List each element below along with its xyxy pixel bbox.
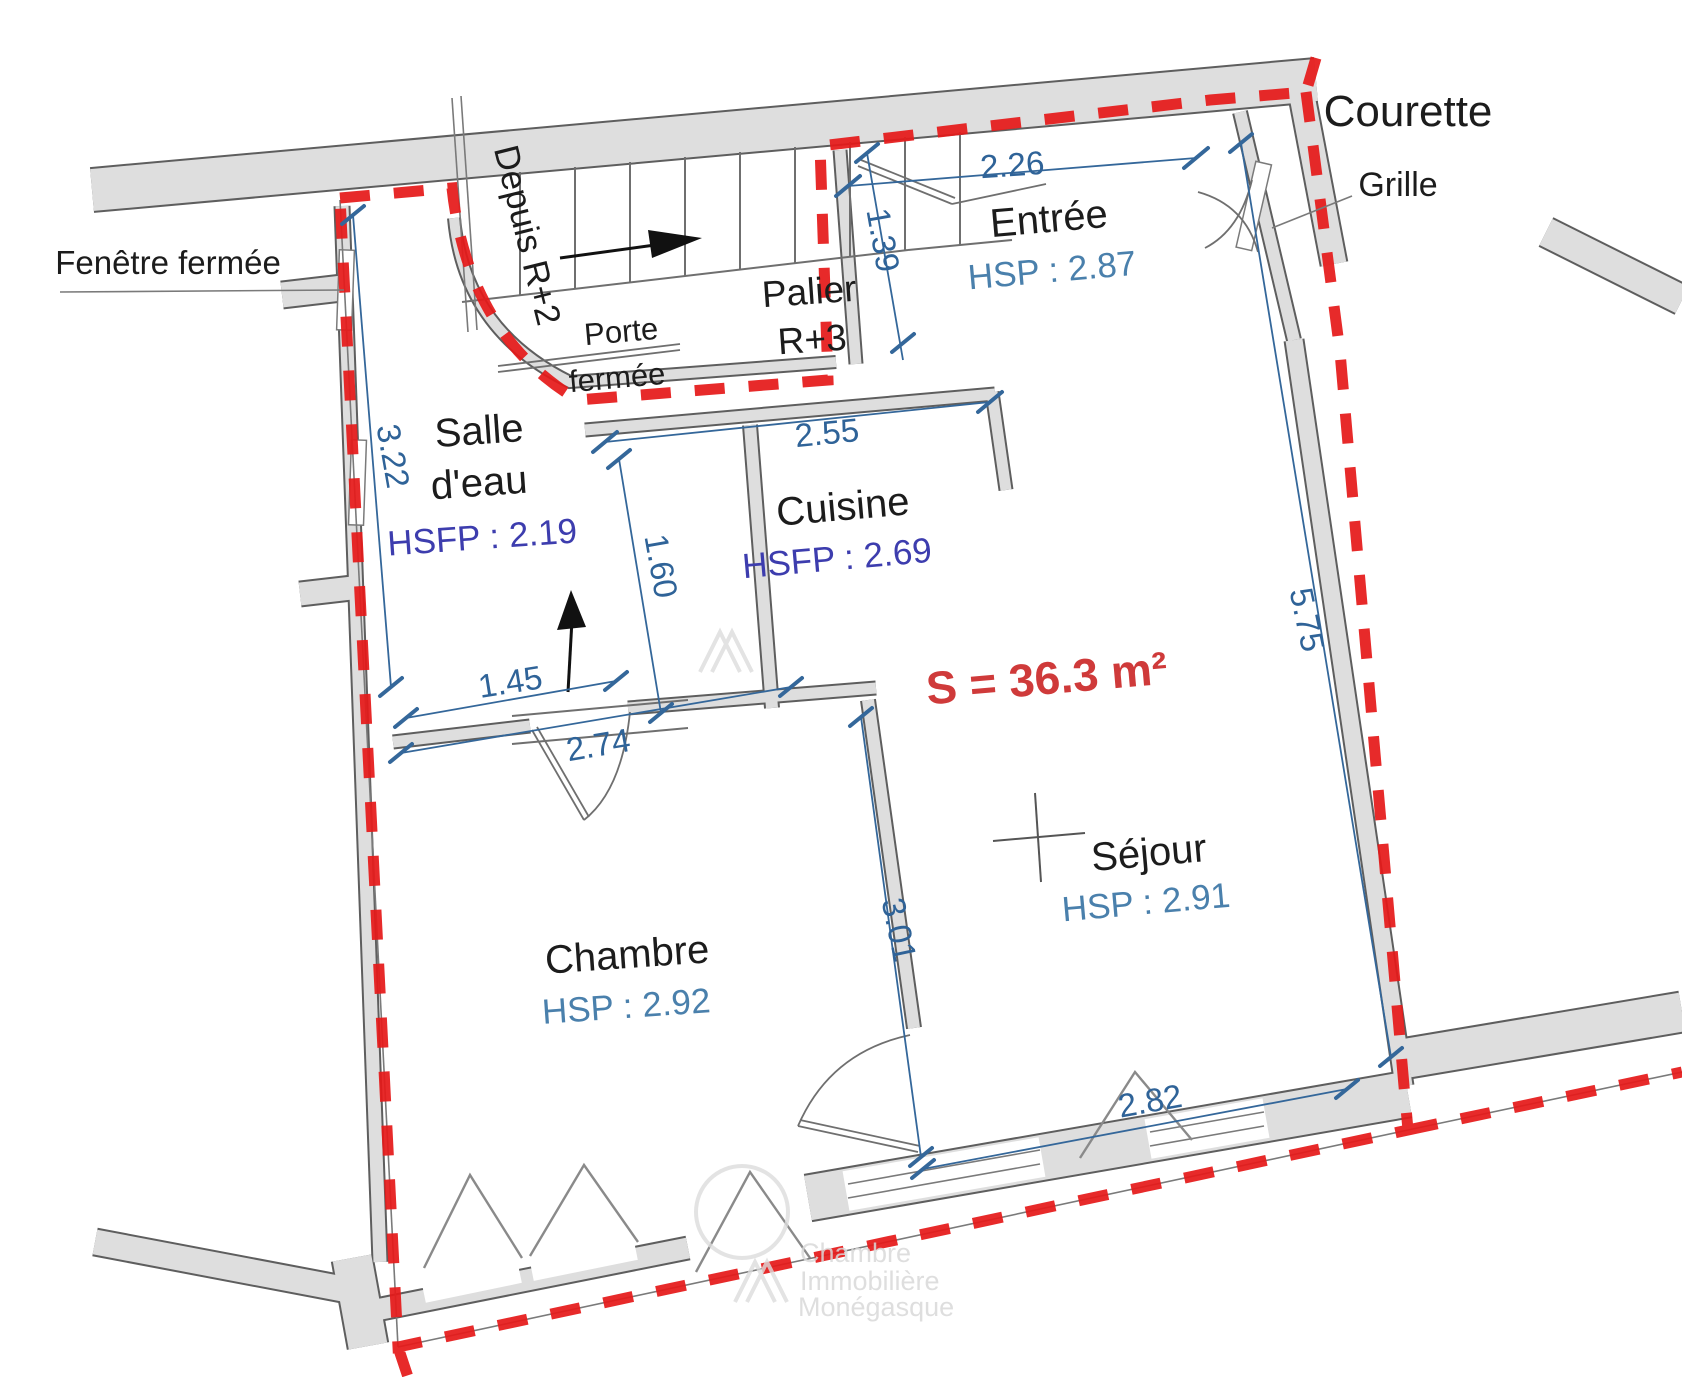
room-labels: Entrée HSP : 2.87 Cuisine HSFP : 2.69 Sa… <box>386 192 1232 1032</box>
sejour-cross-mark <box>993 793 1085 882</box>
dim-255: 2.55 <box>793 411 860 454</box>
room-cuisine-label: Cuisine <box>775 479 912 534</box>
room-salle-eau-label-1: Salle <box>433 406 525 456</box>
room-chambre-label: Chambre <box>544 927 711 982</box>
palier-label-1: Palier <box>761 268 858 315</box>
dim-322: 3.22 <box>370 421 418 491</box>
grille-label: Grille <box>1358 166 1437 204</box>
fenetre-fermee-label: Fenêtre fermée <box>55 244 281 281</box>
watermark-line-3: Monégasque <box>798 1292 954 1322</box>
dim-160: 1.60 <box>638 531 686 601</box>
dim-145: 1.45 <box>476 658 545 705</box>
steps-up-arrow-icon <box>557 590 586 692</box>
dimension-lines: 2.26 1.39 2.55 3.22 1.60 1.45 2.74 3.01 … <box>342 134 1402 1178</box>
dim-226: 2.26 <box>979 144 1046 185</box>
room-salle-eau-height: HSFP : 2.19 <box>386 511 578 563</box>
watermark-line-1: Chambre <box>800 1238 911 1268</box>
room-entree-height: HSP : 2.87 <box>966 244 1137 298</box>
room-entree-label: Entrée <box>988 192 1109 246</box>
floor-plan: 2.26 1.39 2.55 3.22 1.60 1.45 2.74 3.01 … <box>0 0 1682 1377</box>
palier-label-2: R+3 <box>776 317 848 363</box>
floor-plan-canvas: 2.26 1.39 2.55 3.22 1.60 1.45 2.74 3.01 … <box>0 0 1682 1377</box>
porte-fermee-label-1: Porte <box>583 311 660 352</box>
dim-274: 2.74 <box>563 721 632 768</box>
room-cuisine-height: HSFP : 2.69 <box>741 531 934 586</box>
dim-139: 1.39 <box>860 205 908 275</box>
room-chambre-height: HSP : 2.92 <box>541 981 712 1032</box>
room-salle-eau-label-2: d'eau <box>429 458 528 509</box>
dim-301: 3.01 <box>874 894 924 965</box>
courette-label: Courette <box>1324 87 1493 136</box>
room-sejour-height: HSP : 2.91 <box>1060 876 1231 930</box>
surface-area-label: S = 36.3 m² <box>924 642 1169 715</box>
room-sejour-label: Séjour <box>1089 826 1208 880</box>
